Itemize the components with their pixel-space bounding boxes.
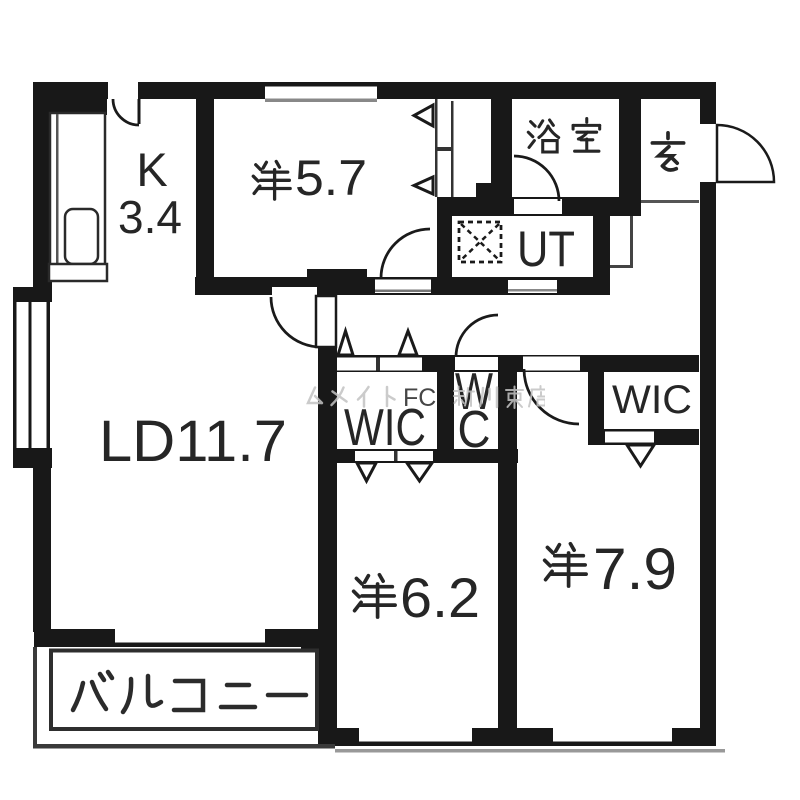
svg-text:UT: UT xyxy=(517,221,575,277)
svg-text:6.2: 6.2 xyxy=(400,566,480,629)
svg-text:7.9: 7.9 xyxy=(593,537,677,602)
svg-text:3.4: 3.4 xyxy=(118,191,182,243)
svg-text:WIC: WIC xyxy=(612,378,692,422)
svg-text:K: K xyxy=(136,143,167,196)
svg-text:C: C xyxy=(458,401,491,459)
svg-text:FC: FC xyxy=(403,384,436,412)
svg-text:LD11.7: LD11.7 xyxy=(99,409,287,474)
svg-text:5.7: 5.7 xyxy=(295,150,367,206)
